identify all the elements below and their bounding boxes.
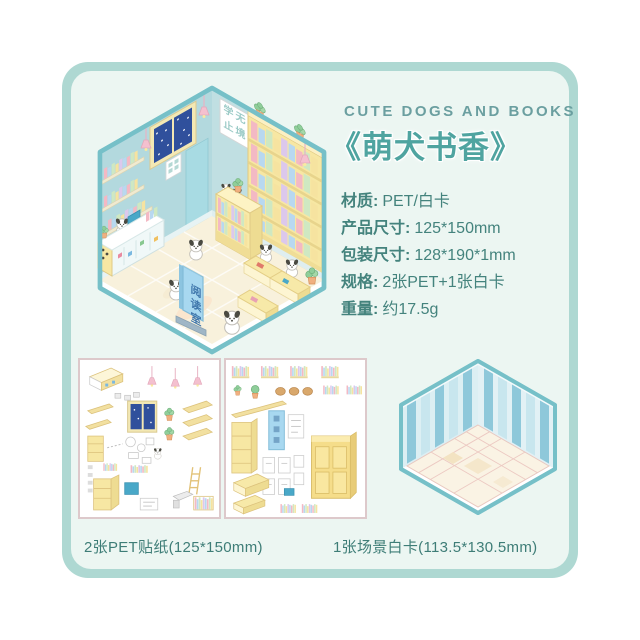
sticker-plant (234, 385, 241, 395)
title-chinese: 《萌犬书香》 (330, 122, 522, 167)
sticker-dog (154, 448, 162, 459)
sticker-sign (140, 498, 157, 510)
spec-contents: 规格:2张PET+1张白卡 (341, 269, 516, 296)
sticker-baskets (276, 387, 313, 395)
spec-list: 材质:PET/白卡 产品尺寸:125*150mm 包装尺寸:128*190*1m… (341, 188, 516, 323)
scene-card (393, 356, 563, 520)
spec-product-size: 产品尺寸:125*150mm (341, 215, 516, 242)
caption-sticker-sheets: 2张PET贴纸(125*150mm) (84, 536, 263, 557)
sticker-notice-board (288, 415, 304, 438)
title-english: CUTE DOGS AND BOOKS (344, 103, 576, 120)
sticker-outline-items (126, 437, 154, 463)
sticker-bookcase (94, 475, 119, 510)
caption-scene-card: 1张场景白卡(113.5*130.5mm) (333, 536, 537, 557)
sticker-books (103, 463, 117, 471)
sticker-books (302, 504, 317, 513)
sticker-counter (90, 368, 123, 390)
sticker-books (195, 497, 213, 509)
sticker-sheet-2 (224, 358, 367, 519)
reading-room-sign-text: 阅读室 (186, 272, 203, 339)
sticker-plant (165, 428, 174, 440)
spec-weight: 重量:约17.5g (341, 296, 516, 323)
sticker-window (128, 401, 157, 432)
sticker-tall-shelf (232, 419, 257, 473)
product-page: { "header": { "title_en": "CUTE DOGS AND… (0, 0, 640, 640)
spec-material: 材质:PET/白卡 (341, 188, 516, 215)
sticker-lamp (148, 366, 156, 387)
sticker-plant (165, 408, 174, 420)
room-illustration (76, 78, 334, 368)
sticker-board (125, 483, 139, 495)
sticker-lamp (193, 366, 201, 387)
sticker-books (131, 465, 148, 473)
sticker-sheet-1 (78, 358, 221, 519)
sticker-mini-boards (263, 456, 304, 495)
sticker-table (234, 495, 265, 513)
sticker-lamp (171, 368, 179, 389)
sticker-ladder (189, 467, 201, 494)
spec-package-size: 包装尺寸:128*190*1mm (341, 242, 516, 269)
sticker-wardrobe (312, 432, 357, 498)
sticker-books (280, 504, 295, 513)
sticker-reading-sign (269, 411, 285, 450)
